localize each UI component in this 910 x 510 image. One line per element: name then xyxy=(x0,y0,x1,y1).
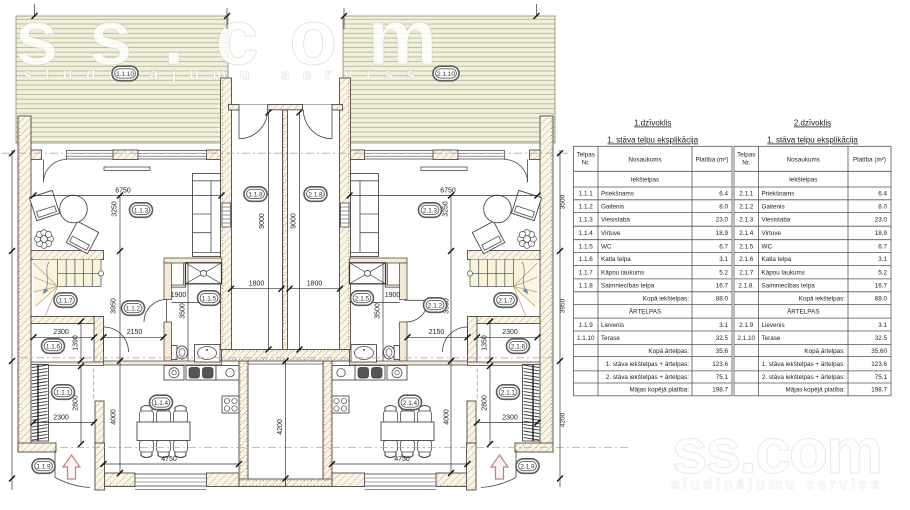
svg-text:Katla telpa: Katla telpa xyxy=(601,256,631,263)
svg-text:1350: 1350 xyxy=(482,335,489,351)
svg-text:1.1.5: 1.1.5 xyxy=(579,243,594,250)
svg-text:Kāpņu laukums: Kāpņu laukums xyxy=(601,269,644,276)
svg-text:1.1.9: 1.1.9 xyxy=(36,463,51,470)
svg-text:1. stāva iekštelpas + ārtelpas: 1. stāva iekštelpas + ārtelpas: xyxy=(762,361,845,368)
svg-text:Lievenis: Lievenis xyxy=(601,322,624,329)
svg-text:ĀRTELPAS: ĀRTELPAS xyxy=(629,308,661,316)
svg-text:1.1.8: 1.1.8 xyxy=(579,283,594,290)
svg-text:6.4: 6.4 xyxy=(719,191,728,198)
svg-text:123.6: 123.6 xyxy=(871,361,887,368)
svg-text:2.1.9: 2.1.9 xyxy=(739,322,754,329)
svg-text:1.1.9: 1.1.9 xyxy=(579,322,594,329)
svg-text:Terase: Terase xyxy=(762,335,781,342)
svg-text:32.5: 32.5 xyxy=(716,335,729,342)
svg-text:6.7: 6.7 xyxy=(719,243,728,250)
svg-text:32.5: 32.5 xyxy=(875,335,888,342)
svg-text:Nr.: Nr. xyxy=(742,160,750,167)
svg-text:1900: 1900 xyxy=(385,292,401,299)
svg-text:2.1.4: 2.1.4 xyxy=(739,230,754,237)
svg-text:ĀRTELPAS: ĀRTELPAS xyxy=(787,308,819,316)
svg-text:2.1.10: 2.1.10 xyxy=(737,335,755,342)
svg-text:Virtuve: Virtuve xyxy=(601,230,621,237)
svg-text:2.1.6: 2.1.6 xyxy=(739,256,754,263)
svg-text:2.1.2: 2.1.2 xyxy=(739,203,754,210)
svg-text:1. stāva telpu eksplikācija: 1. stāva telpu eksplikācija xyxy=(767,136,858,145)
svg-text:Mājas kopējā platība:: Mājas kopējā platība: xyxy=(785,387,845,394)
svg-text:1900: 1900 xyxy=(171,292,187,299)
svg-text:2.1.7: 2.1.7 xyxy=(739,269,754,276)
svg-text:123.6: 123.6 xyxy=(712,361,728,368)
svg-text:8.0: 8.0 xyxy=(878,203,887,210)
svg-text:198.7: 198.7 xyxy=(712,387,728,394)
svg-text:35,60: 35,60 xyxy=(871,348,887,355)
svg-text:WC: WC xyxy=(601,243,612,250)
svg-text:6750: 6750 xyxy=(115,188,131,195)
svg-text:4000: 4000 xyxy=(444,409,451,425)
svg-text:1.1.7: 1.1.7 xyxy=(579,269,594,276)
svg-text:2300: 2300 xyxy=(502,415,518,422)
svg-text:1.1.8: 1.1.8 xyxy=(248,191,263,198)
svg-text:2800: 2800 xyxy=(73,395,80,411)
svg-text:2.1.4: 2.1.4 xyxy=(403,400,418,407)
svg-text:Kāpņu laukums: Kāpņu laukums xyxy=(762,269,805,276)
svg-text:1800: 1800 xyxy=(307,281,323,288)
svg-text:2.1.1: 2.1.1 xyxy=(739,191,754,198)
svg-text:4750: 4750 xyxy=(161,456,177,463)
svg-text:Mājas kopējā platība:: Mājas kopējā platība: xyxy=(629,387,689,394)
svg-text:6.7: 6.7 xyxy=(878,243,887,250)
svg-text:1.1.10: 1.1.10 xyxy=(116,71,134,78)
svg-text:Nosaukums: Nosaukums xyxy=(787,157,820,164)
svg-text:Saimniecības telpa: Saimniecības telpa xyxy=(601,283,655,290)
svg-text:Priekšnams: Priekšnams xyxy=(762,191,795,198)
svg-text:2150: 2150 xyxy=(127,329,143,336)
svg-text:2300: 2300 xyxy=(502,329,518,336)
svg-text:2.1.7: 2.1.7 xyxy=(498,297,513,304)
svg-text:1.1.4: 1.1.4 xyxy=(154,400,169,407)
svg-text:Iekštelpas: Iekštelpas xyxy=(631,176,659,183)
svg-text:4000: 4000 xyxy=(111,409,118,425)
svg-text:2.1.9: 2.1.9 xyxy=(520,463,535,470)
svg-text:3950: 3950 xyxy=(111,298,118,314)
svg-text:Katla telpa: Katla telpa xyxy=(762,256,792,263)
svg-text:Saimniecības telpa: Saimniecības telpa xyxy=(762,283,816,290)
svg-text:Viesistaba: Viesistaba xyxy=(601,217,630,224)
svg-text:1.1.3: 1.1.3 xyxy=(134,207,149,214)
svg-text:75.1: 75.1 xyxy=(716,374,729,381)
svg-text:1.1.4: 1.1.4 xyxy=(579,230,594,237)
svg-text:1.1.3: 1.1.3 xyxy=(579,217,594,224)
svg-text:Virtuve: Virtuve xyxy=(762,230,782,237)
svg-text:2.dzīvoklis: 2.dzīvoklis xyxy=(794,119,831,128)
svg-text:9000: 9000 xyxy=(259,213,266,229)
svg-text:75.1: 75.1 xyxy=(875,374,888,381)
svg-text:23.0: 23.0 xyxy=(716,217,729,224)
svg-text:2.1.6: 2.1.6 xyxy=(511,343,526,350)
svg-text:16.7: 16.7 xyxy=(875,283,888,290)
svg-text:3.1: 3.1 xyxy=(719,322,728,329)
svg-text:2. stāva iekštelpas + ārtelpas: 2. stāva iekštelpas + ārtelpas: xyxy=(606,374,689,381)
svg-text:2.1.10: 2.1.10 xyxy=(437,71,455,78)
svg-text:WC: WC xyxy=(762,243,773,250)
svg-text:35.6: 35.6 xyxy=(716,348,729,355)
svg-text:23.0: 23.0 xyxy=(875,217,888,224)
svg-text:3500: 3500 xyxy=(560,194,567,209)
svg-text:2.1.1: 2.1.1 xyxy=(501,389,516,396)
svg-text:6.4: 6.4 xyxy=(878,191,887,198)
svg-text:4200: 4200 xyxy=(560,412,567,427)
svg-text:2. stāva iekštelpas + ārtelpas: 2. stāva iekštelpas + ārtelpas: xyxy=(762,374,845,381)
svg-text:Gaitenis: Gaitenis xyxy=(601,203,624,210)
svg-text:2.1.5: 2.1.5 xyxy=(739,243,754,250)
svg-text:1.1.1: 1.1.1 xyxy=(56,389,71,396)
svg-text:2800: 2800 xyxy=(482,395,489,411)
svg-text:1390: 1390 xyxy=(73,335,80,351)
svg-text:1. stāva iekštelpas + ārtelpas: 1. stāva iekštelpas + ārtelpas: xyxy=(606,361,689,368)
svg-text:2.1.3: 2.1.3 xyxy=(423,207,438,214)
svg-text:Telpas: Telpas xyxy=(577,152,595,159)
svg-text:3500: 3500 xyxy=(375,303,382,319)
svg-text:198.7: 198.7 xyxy=(871,387,887,394)
svg-text:3500: 3500 xyxy=(180,303,187,319)
svg-text:Telpas: Telpas xyxy=(737,152,755,159)
svg-text:2.1.8: 2.1.8 xyxy=(308,191,323,198)
svg-text:1.1.7: 1.1.7 xyxy=(58,297,73,304)
svg-text:Platība (m²): Platība (m²) xyxy=(696,157,729,164)
svg-text:18.9: 18.9 xyxy=(716,230,729,237)
svg-text:1.1.2: 1.1.2 xyxy=(126,305,141,312)
svg-text:1.dzīvoklis: 1.dzīvoklis xyxy=(634,119,671,128)
svg-text:Terase: Terase xyxy=(601,335,620,342)
svg-text:1.1.5: 1.1.5 xyxy=(202,295,217,302)
svg-text:Gaitenis: Gaitenis xyxy=(762,203,785,210)
svg-text:4200: 4200 xyxy=(277,419,284,435)
svg-text:88.0: 88.0 xyxy=(716,295,729,302)
svg-text:3950: 3950 xyxy=(560,298,567,313)
svg-text:5.2: 5.2 xyxy=(719,269,728,276)
svg-text:3250: 3250 xyxy=(112,201,119,217)
svg-text:2.1.3: 2.1.3 xyxy=(739,217,754,224)
svg-text:3.1: 3.1 xyxy=(878,256,887,263)
svg-text:Platība (m²): Platība (m²) xyxy=(853,157,886,164)
svg-text:1.1.6: 1.1.6 xyxy=(579,256,594,263)
svg-text:8.0: 8.0 xyxy=(719,203,728,210)
svg-text:Nr.: Nr. xyxy=(582,160,590,167)
svg-text:Kopā ārtelpas:: Kopā ārtelpas: xyxy=(648,348,689,355)
svg-text:Kopā iekštelpas:: Kopā iekštelpas: xyxy=(799,295,845,302)
svg-text:5.2: 5.2 xyxy=(878,269,887,276)
svg-text:1800: 1800 xyxy=(249,281,265,288)
svg-text:1.1.10: 1.1.10 xyxy=(577,335,595,342)
svg-text:1.1.2: 1.1.2 xyxy=(579,203,594,210)
svg-text:4750: 4750 xyxy=(394,456,410,463)
svg-text:3250: 3250 xyxy=(443,201,450,217)
svg-text:9000: 9000 xyxy=(291,213,298,229)
svg-text:Nosaukums: Nosaukums xyxy=(628,157,661,164)
svg-text:16.7: 16.7 xyxy=(716,283,729,290)
svg-text:88.0: 88.0 xyxy=(875,295,888,302)
svg-text:Lievenis: Lievenis xyxy=(762,322,785,329)
svg-text:3.1: 3.1 xyxy=(878,322,887,329)
svg-text:1. stāva telpu eksplikācija: 1. stāva telpu eksplikācija xyxy=(607,136,698,145)
svg-text:2300: 2300 xyxy=(53,329,69,336)
svg-text:Kopā iekštelpas:: Kopā iekštelpas: xyxy=(643,295,689,302)
svg-text:2.1.8.: 2.1.8. xyxy=(738,283,754,290)
svg-text:1.1.6: 1.1.6 xyxy=(46,343,61,350)
svg-text:2300: 2300 xyxy=(53,415,69,422)
svg-text:Viesistaba: Viesistaba xyxy=(762,217,791,224)
svg-text:2.1.2: 2.1.2 xyxy=(428,302,443,309)
svg-text:18.9: 18.9 xyxy=(875,230,888,237)
svg-text:Kopā ārtelpas:: Kopā ārtelpas: xyxy=(804,348,845,355)
svg-text:1.1.1: 1.1.1 xyxy=(579,191,594,198)
svg-text:2150: 2150 xyxy=(429,329,445,336)
svg-text:2.1.5: 2.1.5 xyxy=(355,295,370,302)
svg-text:Iekštelpas: Iekštelpas xyxy=(789,176,817,183)
svg-text:Priekšnams: Priekšnams xyxy=(601,191,634,198)
svg-text:3.1: 3.1 xyxy=(719,256,728,263)
